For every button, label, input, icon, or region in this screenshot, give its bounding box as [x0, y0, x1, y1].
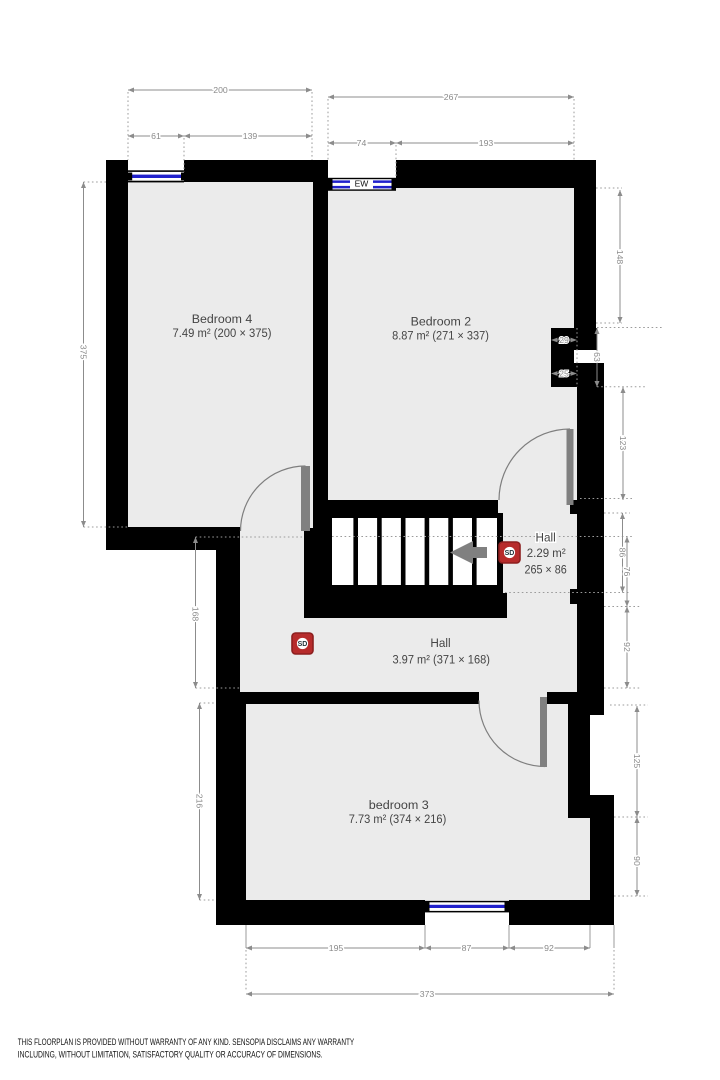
svg-text:Bedroom 2: Bedroom 2	[411, 314, 472, 328]
svg-text:2.29 m²: 2.29 m²	[527, 546, 566, 560]
svg-text:92: 92	[622, 642, 632, 652]
svg-text:90: 90	[632, 856, 642, 866]
svg-text:168: 168	[190, 607, 200, 622]
svg-text:3.97 m² (371 × 168): 3.97 m² (371 × 168)	[392, 652, 490, 666]
svg-text:7.73 m² (374 × 216): 7.73 m² (374 × 216)	[349, 812, 447, 826]
svg-text:25: 25	[559, 369, 569, 379]
svg-text:125: 125	[632, 754, 642, 769]
svg-text:87: 87	[462, 943, 472, 953]
svg-text:373: 373	[420, 989, 435, 999]
svg-text:INCLUDING, WITHOUT LIMITATION,: INCLUDING, WITHOUT LIMITATION, SATISFACT…	[18, 1050, 323, 1060]
svg-text:63: 63	[592, 352, 602, 362]
svg-text:76: 76	[622, 567, 632, 577]
svg-text:29: 29	[559, 335, 569, 345]
svg-text:86: 86	[617, 548, 627, 558]
svg-text:216: 216	[194, 794, 204, 809]
svg-text:Bedroom 4: Bedroom 4	[192, 312, 253, 326]
svg-text:SD: SD	[298, 641, 308, 648]
svg-text:265 × 86: 265 × 86	[524, 562, 566, 576]
svg-text:Hall: Hall	[536, 530, 556, 544]
svg-text:195: 195	[329, 943, 344, 953]
svg-text:74: 74	[357, 138, 367, 148]
svg-text:123: 123	[618, 436, 628, 451]
svg-text:SD: SD	[505, 550, 515, 557]
svg-text:7.49 m² (200 × 375): 7.49 m² (200 × 375)	[173, 326, 272, 340]
svg-text:61: 61	[151, 131, 161, 141]
svg-text:148: 148	[615, 250, 625, 265]
svg-text:Hall: Hall	[430, 636, 450, 650]
svg-text:bedroom 3: bedroom 3	[369, 798, 429, 812]
svg-text:267: 267	[444, 92, 459, 102]
svg-text:8.87 m² (271 × 337): 8.87 m² (271 × 337)	[392, 329, 489, 343]
svg-text:200: 200	[213, 85, 228, 95]
svg-text:139: 139	[243, 131, 258, 141]
svg-text:375: 375	[78, 345, 88, 360]
svg-text:EW: EW	[355, 179, 369, 189]
svg-text:92: 92	[544, 943, 554, 953]
svg-text:193: 193	[479, 138, 494, 148]
svg-text:THIS FLOORPLAN IS PROVIDED WIT: THIS FLOORPLAN IS PROVIDED WITHOUT WARRA…	[18, 1037, 355, 1047]
